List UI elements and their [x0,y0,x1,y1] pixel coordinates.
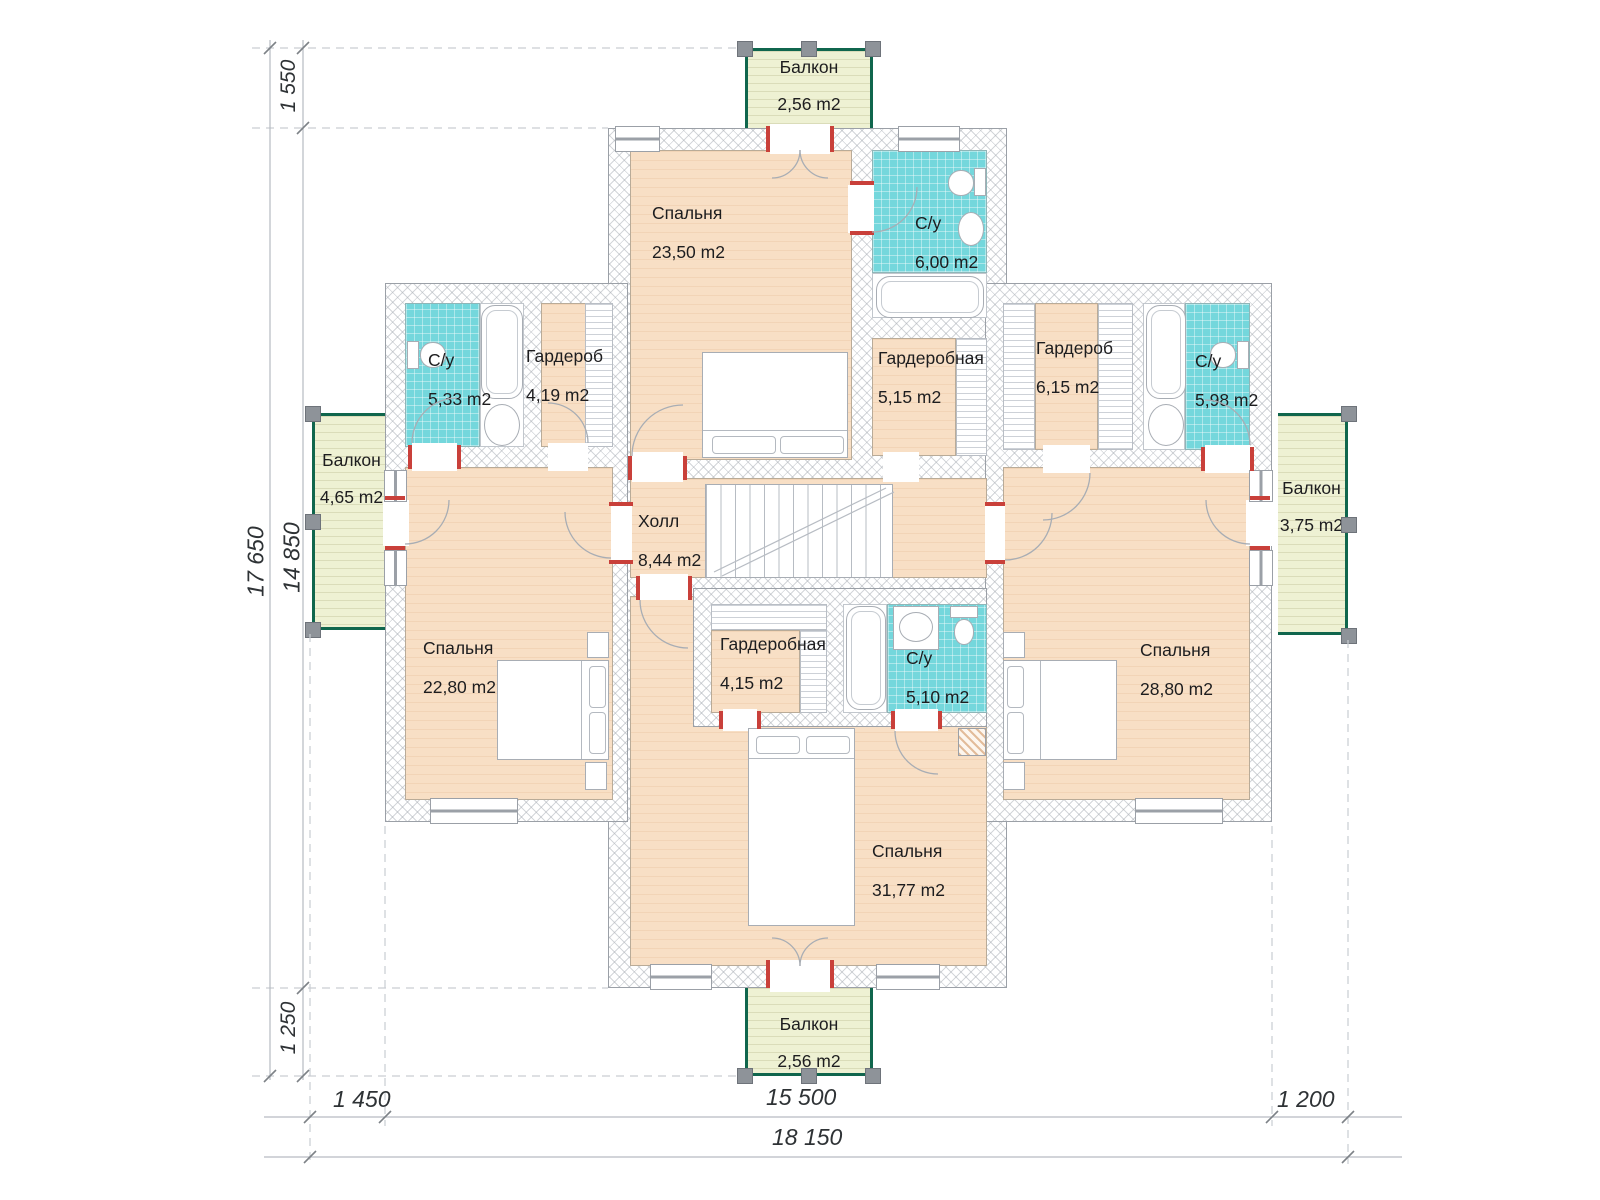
closet-shelves [1003,303,1035,450]
label-bedroom-left: Спальня 22,80 m2 [423,640,496,696]
opening-wardrobe-left-door [548,443,588,471]
pillow [1007,666,1024,708]
bathtub [1146,305,1186,399]
door-jamb-mark [609,502,633,506]
label-hall: Холл 8,44 m2 [638,513,701,569]
room-name: Балкон [322,450,381,470]
room-name: Спальня [423,638,493,658]
room-name: С/у [1195,351,1221,371]
room-name: С/у [428,350,454,370]
room-area: 5,98 m2 [1195,392,1258,410]
label-wardrobe-left: Гардероб 4,19 m2 [526,348,603,404]
post [1341,628,1357,644]
opening-balcony-door-left [383,500,409,546]
nightstand [1003,632,1025,658]
pillow [589,666,606,708]
balcony-right: Балкон 3,75 m2 [1278,413,1348,635]
opening-bathroom-top-door [848,185,874,233]
post [737,41,753,57]
room-name: С/у [915,213,941,233]
toilet-bowl [948,170,974,196]
dim-vertical-total: 17 650 [243,492,270,632]
pillow [780,436,844,454]
dim-horizontal-right: 1 200 [1277,1086,1335,1113]
door-jamb-mark [757,711,761,729]
post [737,1068,753,1084]
post [305,622,321,638]
window [615,126,660,152]
door-jamb-mark [1250,447,1254,471]
room-area: 4,19 m2 [526,387,603,405]
window [876,964,940,990]
door-jamb-mark [1250,546,1270,550]
opening-bathroom-bottom-door [895,709,938,731]
balcony-top: Балкон 2,56 m2 [745,48,873,130]
post [1341,406,1357,422]
room-area: 28,80 m2 [1140,681,1213,699]
vent-shaft [958,728,986,756]
opening-bedroom-bottom-door [640,574,688,600]
room-area: 23,50 m2 [652,244,725,262]
opening-bedroom-top-door [632,452,683,482]
room-name: Холл [638,511,679,531]
opening-wardrobe-right-door [1043,445,1090,473]
label-bathroom-bottom: С/у 5,10 m2 [906,650,969,706]
door-jamb-mark [385,546,405,550]
door-jamb-mark [636,576,640,600]
dim-horizontal-left: 1 450 [333,1086,391,1113]
room-name: Балкон [780,1014,839,1034]
dim-vertical-main: 14 850 [279,488,306,628]
room-area: 31,77 m2 [872,882,945,900]
room-area: 5,33 m2 [428,391,491,409]
label-bedroom-top: Спальня 23,50 m2 [652,205,725,261]
post [305,514,321,530]
bed-blanket-line [1040,661,1041,759]
door-jamb-mark [830,960,834,988]
sink [899,612,933,642]
room-area: 2,56 m2 [748,96,870,114]
label-bedroom-right: Спальня 28,80 m2 [1140,642,1213,698]
label-bathroom-left: С/у 5,33 m2 [428,352,491,408]
room-name: Спальня [1140,640,1210,660]
toilet-tank [974,168,986,196]
door-jamb-mark [891,711,895,729]
label-bathroom-right: С/у 5,98 m2 [1195,353,1258,409]
nightstand [585,762,607,790]
door-jamb-mark [457,445,461,469]
pillow [1007,712,1024,754]
window [898,126,960,152]
opening-balcony-door-bottom [770,960,830,992]
window [384,550,407,586]
staircase [705,484,893,578]
pillow [756,736,800,754]
opening-dressing-top-door [883,452,919,482]
pillow [806,736,850,754]
balcony-right-label: Балкон 3,75 m2 [1278,480,1345,534]
door-jamb-mark [385,496,405,500]
room-name: Гардероб [1036,338,1113,358]
opening-hall-left [611,506,632,562]
pillow [712,436,776,454]
room-name: Гардероб [526,346,603,366]
sink [1148,404,1184,446]
post [801,1068,817,1084]
door-jamb-mark [766,960,770,988]
toilet-tank [407,341,419,369]
dim-vertical-bottom: 1 250 [277,958,301,1098]
closet-shelves [711,604,827,630]
door-jamb-mark [1201,447,1205,471]
post [865,1068,881,1084]
opening-bathroom-right-door [1205,445,1250,473]
door-jamb-mark [985,560,1005,564]
label-bedroom-bottom: Спальня 31,77 m2 [872,843,945,899]
toilet-bowl [954,619,974,645]
window [1249,550,1273,586]
room-name: Балкон [780,57,839,77]
dim-horizontal-main: 15 500 [766,1084,836,1111]
post [865,41,881,57]
room-area: 8,44 m2 [638,552,701,570]
door-jamb-mark [408,445,412,469]
window [650,964,712,990]
room-area: 5,15 m2 [878,389,984,407]
dim-horizontal-total: 18 150 [772,1124,842,1151]
window [430,798,518,824]
label-dressing-top: Гардеробная 5,15 m2 [878,350,984,406]
room-area: 5,10 m2 [906,689,969,707]
opening-balcony-door-right [1246,500,1274,546]
balcony-top-label: Балкон 2,56 m2 [748,59,870,113]
bathtub [846,606,886,710]
room-area: 22,80 m2 [423,679,496,697]
balcony-left: Балкон 4,65 m2 [312,413,388,630]
balcony-left-label: Балкон 4,65 m2 [315,452,388,506]
room-name: Спальня [652,203,722,223]
balcony-bottom-label: Балкон 2,56 m2 [748,1016,870,1070]
bed-blanket-line [703,430,847,431]
nightstand [1003,762,1025,790]
room-name: Гардеробная [878,348,984,368]
room-name: С/у [906,648,932,668]
nightstand [587,632,609,658]
door-jamb-mark [628,456,632,480]
window [1135,798,1223,824]
opening-balcony-door-top [770,124,830,154]
post [305,406,321,422]
room-name: Балкон [1282,478,1341,498]
opening-hall-right [985,506,1005,562]
balcony-bottom: Балкон 2,56 m2 [745,988,873,1076]
door-jamb-mark [850,181,874,185]
room-area: 3,75 m2 [1278,517,1345,535]
door-jamb-mark [1250,496,1270,500]
door-jamb-mark [719,711,723,729]
door-jamb-mark [938,711,942,729]
room-name: Спальня [872,841,942,861]
floor-plan-canvas: Балкон 2,56 m2 Балкон 2,56 m2 Балкон 4,6… [0,0,1600,1200]
label-bathroom-top: С/у 6,00 m2 [915,215,978,271]
post [801,41,817,57]
room-name: Гардеробная [720,634,826,654]
label-dressing-bottom: Гардеробная 4,15 m2 [720,636,826,692]
label-wardrobe-right: Гардероб 6,15 m2 [1036,340,1113,396]
bed-blanket-line [581,661,582,759]
toilet-tank [950,606,978,618]
opening-bathroom-left-door [412,443,457,471]
dim-vertical-top: 1 550 [277,16,301,156]
door-jamb-mark [985,502,1005,506]
room-area: 4,15 m2 [720,675,826,693]
door-jamb-mark [830,126,834,152]
post [1341,517,1357,533]
sink [484,404,520,446]
door-jamb-mark [609,560,633,564]
room-area: 4,65 m2 [315,489,388,507]
bathtub [876,276,984,318]
door-jamb-mark [766,126,770,152]
door-jamb-mark [683,456,687,480]
pillow [589,712,606,754]
door-jamb-mark [850,231,874,235]
door-jamb-mark [688,576,692,600]
bed-blanket-line [749,758,854,759]
room-area: 6,00 m2 [915,254,978,272]
room-area: 6,15 m2 [1036,379,1113,397]
